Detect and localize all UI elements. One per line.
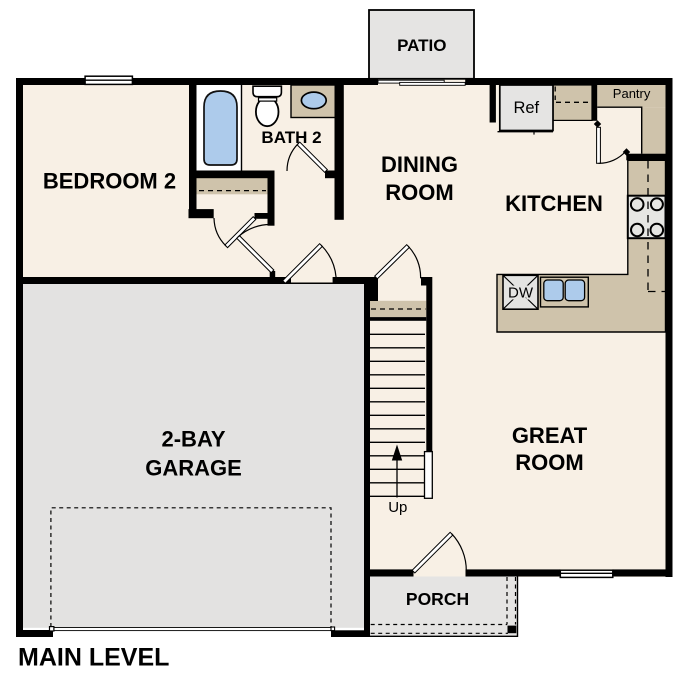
svg-text:2-BAY: 2-BAY — [162, 427, 226, 452]
svg-text:BEDROOM 2: BEDROOM 2 — [43, 169, 176, 194]
svg-text:PORCH: PORCH — [406, 589, 469, 609]
svg-text:MAIN LEVEL: MAIN LEVEL — [18, 644, 169, 672]
svg-text:Pantry: Pantry — [613, 86, 651, 101]
svg-text:GARAGE: GARAGE — [145, 456, 242, 481]
svg-text:Up: Up — [388, 499, 407, 516]
svg-text:GREAT: GREAT — [512, 423, 588, 448]
svg-text:DINING: DINING — [381, 152, 458, 177]
svg-text:PATIO: PATIO — [397, 36, 446, 55]
svg-text:BATH 2: BATH 2 — [261, 128, 321, 147]
svg-text:Ref: Ref — [513, 99, 539, 117]
svg-text:KITCHEN: KITCHEN — [505, 191, 603, 216]
svg-text:ROOM: ROOM — [385, 180, 453, 205]
svg-text:ROOM: ROOM — [515, 450, 583, 475]
svg-text:DW: DW — [508, 285, 534, 302]
